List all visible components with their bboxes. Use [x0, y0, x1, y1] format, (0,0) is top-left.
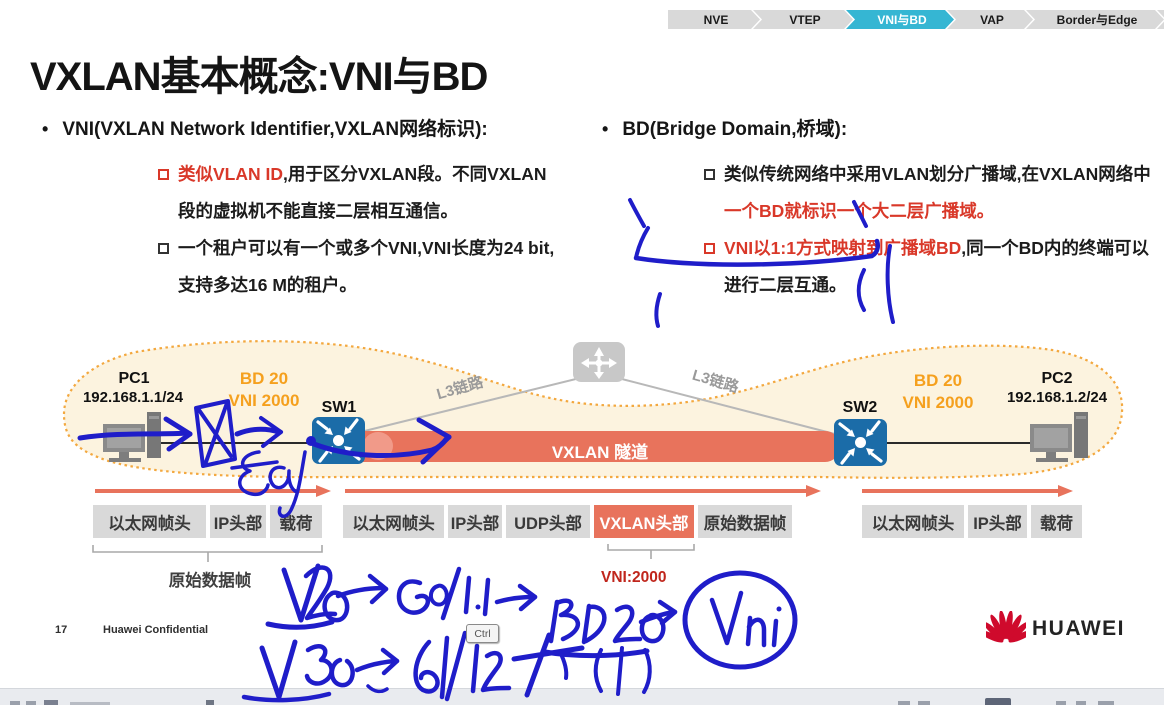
taskbar-icon[interactable] [1076, 701, 1086, 705]
vni-2000-caption: VNI:2000 [601, 569, 666, 587]
bd-bullet-1-red: 一个BD就标识一个大二层广播域。 [724, 201, 994, 221]
vni-bullet-1-red: 类似VLAN ID [178, 164, 283, 184]
vni-bullet-1: 类似VLAN ID,用于区分VXLAN段。不同VXLAN段的虚拟机不能直接二层相… [178, 156, 556, 230]
square-bullet-icon [704, 169, 715, 180]
breadcrumb-item-vni-bd: VNI与BD [846, 10, 954, 29]
frame-cell-eth: 以太网帧头 [93, 505, 206, 538]
taskbar-icon[interactable] [985, 698, 1011, 705]
frame-cell-udp: UDP头部 [506, 505, 590, 538]
bd-bullets: 类似传统网络中采用VLAN划分广播域,在VXLAN网络中一个BD就标识一个大二层… [724, 156, 1156, 304]
taskbar-icon[interactable] [26, 701, 36, 705]
taskbar-icon[interactable] [1056, 701, 1066, 705]
vni-heading: •VNI(VXLAN Network Identifier,VXLAN网络标识)… [42, 114, 488, 141]
confidential-label: Huawei Confidential [103, 624, 208, 636]
router-icon [573, 342, 625, 382]
breadcrumb-item-border-edge: Border与Edge [1026, 10, 1164, 29]
taskbar-icon[interactable] [10, 701, 20, 705]
bd-bullet-2: VNI以1:1方式映射到广播域BD,同一个BD内的终端可以进行二层互通。 [724, 230, 1156, 304]
taskbar-icon[interactable] [918, 701, 930, 705]
page-number: 17 [55, 624, 67, 636]
braces [93, 544, 694, 562]
frame-cell-eth: 以太网帧头 [862, 505, 964, 538]
pc2-label: PC2 [1035, 370, 1079, 388]
pc1-label: PC1 [112, 370, 156, 388]
huawei-logo: HUAWEI [986, 611, 1125, 647]
taskbar-icon[interactable] [44, 700, 58, 705]
vni-bullet-2-text: 一个租户可以有一个或多个VNI,VNI长度为24 bit,支持多达16 M的租户… [178, 238, 554, 295]
vni-bullets: 类似VLAN ID,用于区分VXLAN段。不同VXLAN段的虚拟机不能直接二层相… [178, 156, 556, 304]
frame-cell-ip: IP头部 [448, 505, 502, 538]
vni-right-label: VNI 2000 [892, 393, 984, 413]
taskbar-icon[interactable] [898, 701, 910, 705]
bd-bullet-2-red: VNI以1:1方式映射到广播域BD [724, 238, 961, 258]
frame-cell-payload: 载荷 [270, 505, 322, 538]
frame-cell-vxlan-header: VXLAN头部 [594, 505, 694, 538]
switch-icon-sw2 [834, 419, 887, 466]
bullet-dot: • [42, 119, 48, 139]
huawei-flower-icon [986, 611, 1026, 647]
frame-cell-ip: IP头部 [968, 505, 1027, 538]
taskbar-icon[interactable] [206, 700, 214, 705]
slide: NVE VTEP VNI与BD VAP Border与Edge 网关 VXLAN… [0, 0, 1164, 705]
breadcrumb-item-vtep: VTEP [753, 10, 853, 29]
bd-bullet-1-black: 类似传统网络中采用VLAN划分广播域,在VXLAN网络中 [724, 164, 1151, 184]
frame-cell-payload: 载荷 [1031, 505, 1082, 538]
bd-heading: •BD(Bridge Domain,桥域): [602, 114, 847, 141]
square-bullet-icon [158, 243, 169, 254]
breadcrumb-item-vap: VAP [947, 10, 1033, 29]
vni-left-label: VNI 2000 [218, 391, 310, 411]
bd-left-label: BD 20 [222, 369, 306, 389]
taskbar[interactable] [0, 688, 1164, 705]
vni-bullet-2: 一个租户可以有一个或多个VNI,VNI长度为24 bit,支持多达16 M的租户… [178, 230, 556, 304]
sw1-label: SW1 [316, 399, 362, 417]
vxlan-tunnel-label: VXLAN 隧道 [520, 438, 680, 463]
ctrl-key-indicator: Ctrl [466, 624, 499, 643]
sw2-label: SW2 [837, 399, 883, 417]
pc2-ip-label: 192.168.1.2/24 [1002, 389, 1112, 406]
breadcrumb-item-nve: NVE [668, 10, 760, 29]
frame-cell-ip: IP头部 [210, 505, 266, 538]
frame-cell-original: 原始数据帧 [698, 505, 792, 538]
bd-right-label: BD 20 [896, 371, 980, 391]
breadcrumb: NVE VTEP VNI与BD VAP Border与Edge 网关 [668, 10, 1164, 29]
square-bullet-icon [704, 243, 715, 254]
pc1-ip-label: 192.168.1.1/24 [78, 389, 188, 406]
flow-arrows [95, 485, 1073, 497]
huawei-wordmark: HUAWEI [1032, 617, 1125, 641]
square-bullet-icon [158, 169, 169, 180]
frame-cell-eth: 以太网帧头 [343, 505, 444, 538]
bullet-dot: • [602, 119, 608, 139]
taskbar-icon[interactable] [1098, 701, 1114, 705]
switch-icon-sw1 [312, 417, 365, 464]
page-title: VXLAN基本概念:VNI与BD [30, 44, 487, 102]
bd-bullet-1: 类似传统网络中采用VLAN划分广播域,在VXLAN网络中一个BD就标识一个大二层… [724, 156, 1156, 230]
original-frame-caption: 原始数据帧 [152, 567, 268, 591]
